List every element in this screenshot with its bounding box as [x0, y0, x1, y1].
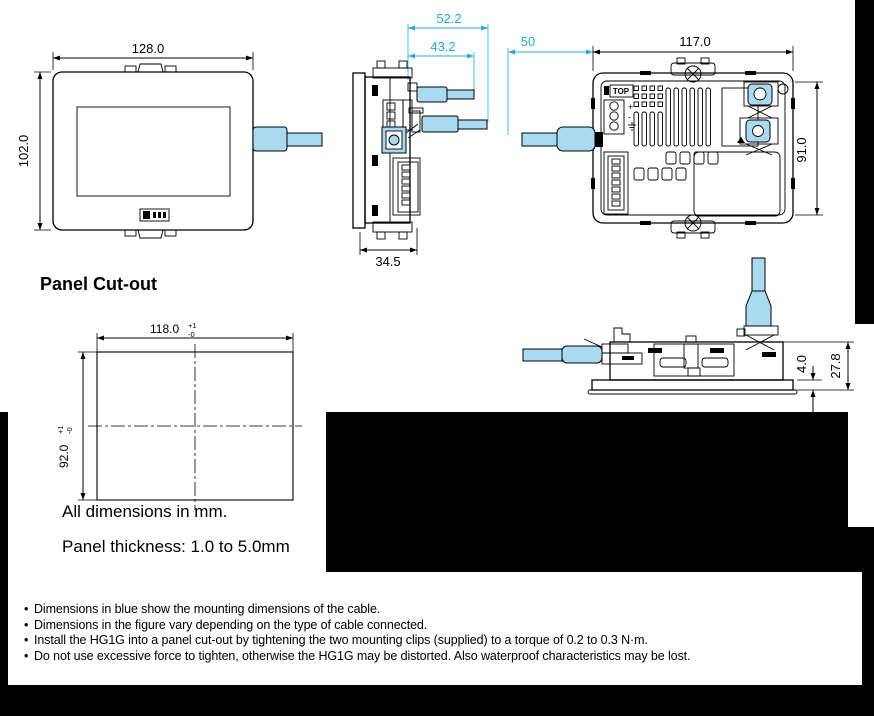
terminal-plus-symbol: + [628, 102, 633, 112]
note-text: Install the HG1G into a panel cut-out by… [34, 633, 648, 649]
dim-cutout-width: 118.0 [150, 322, 179, 336]
bottom-bezel [592, 380, 793, 390]
side-cable-2 [409, 108, 487, 132]
bullet-icon [24, 602, 34, 618]
side-cable-1 [408, 83, 474, 102]
dim-side-cable-total: 52.2 [436, 11, 461, 26]
front-bezel [53, 72, 253, 230]
note-item: Dimensions in the figure vary depending … [24, 618, 858, 634]
note-text: Dimensions in the figure vary depending … [34, 618, 427, 634]
front-cable [253, 127, 322, 151]
marker-triangle [737, 137, 745, 143]
rear-usb-connector-2 [740, 118, 778, 155]
dim-cutout-width-tol-plus: +1 [188, 321, 197, 330]
bottom-view: 4.0 27.8 [523, 258, 854, 412]
note-item: Dimensions in blue show the mounting dim… [24, 602, 858, 618]
dim-cutout-height-tol-plus: +1 [56, 425, 65, 434]
bullet-icon [24, 618, 34, 634]
rear-mounting-clip-top [671, 58, 715, 82]
side-serial-connector [398, 162, 418, 212]
note-item: Do not use excessive force to tighten, o… [24, 649, 858, 665]
side-flange [353, 73, 365, 228]
idec-logo-badge [140, 209, 169, 221]
dim-front-width: 128.0 [132, 41, 165, 56]
ground-symbol [628, 122, 636, 130]
rear-view: 50 117.0 91.0 [508, 34, 823, 238]
front-view: 128.0 102.0 [16, 41, 322, 238]
note-item: Install the HG1G into a panel cut-out by… [24, 633, 858, 649]
panel-thickness-note: Panel thickness: 1.0 to 5.0mm [62, 537, 290, 557]
rear-nameplate [694, 152, 780, 216]
rear-usb-connector-1 [744, 82, 788, 118]
dim-cutout-height-tol-minus: -0 [65, 427, 74, 434]
rear-serial-connector [604, 152, 628, 214]
rear-top-marking: TOP [613, 87, 630, 96]
notes-list: Dimensions in blue show the mounting dim… [24, 602, 858, 664]
rear-mounting-clip-bottom [671, 215, 715, 238]
note-text: Dimensions in blue show the mounting dim… [34, 602, 380, 618]
panel-cutout-drawing: 118.0 +1 -0 92.0 +1 -0 [56, 321, 302, 510]
dim-rear-cable-clearance: 50 [521, 34, 535, 49]
bottom-cable-vertical [737, 258, 778, 350]
side-port [382, 124, 420, 153]
rear-cable [522, 127, 603, 151]
units-note: All dimensions in mm. [62, 502, 227, 522]
bullet-icon [24, 649, 34, 665]
dim-front-height: 102.0 [16, 135, 31, 168]
dim-side-cable: 43.2 [430, 39, 455, 54]
dim-bottom-bezel: 4.0 [794, 355, 809, 373]
bullet-icon [24, 633, 34, 649]
front-screen [77, 107, 230, 196]
rear-power-terminal: + - [604, 100, 636, 134]
dim-bottom-depth: 27.8 [828, 353, 843, 378]
datasheet-page: { "colors": { "dimension_blue": "#29A8DF… [0, 0, 874, 716]
panel-cutout-title: Panel Cut-out [40, 274, 157, 295]
dim-side-depth: 34.5 [375, 254, 400, 269]
bottom-clip [614, 328, 630, 342]
dim-cutout-width-tol-minus: -0 [188, 330, 195, 339]
dim-cutout-height: 92.0 [57, 444, 71, 468]
dim-rear-height: 91.0 [794, 137, 809, 162]
bottom-cable-horizontal [523, 339, 642, 364]
terminal-minus-symbol: - [628, 112, 631, 122]
dim-rear-width: 117.0 [679, 34, 711, 49]
bottom-body [610, 342, 783, 380]
note-text: Do not use excessive force to tighten, o… [34, 649, 690, 665]
side-view: 52.2 43.2 [353, 11, 488, 269]
rear-vent-grid [634, 86, 663, 107]
